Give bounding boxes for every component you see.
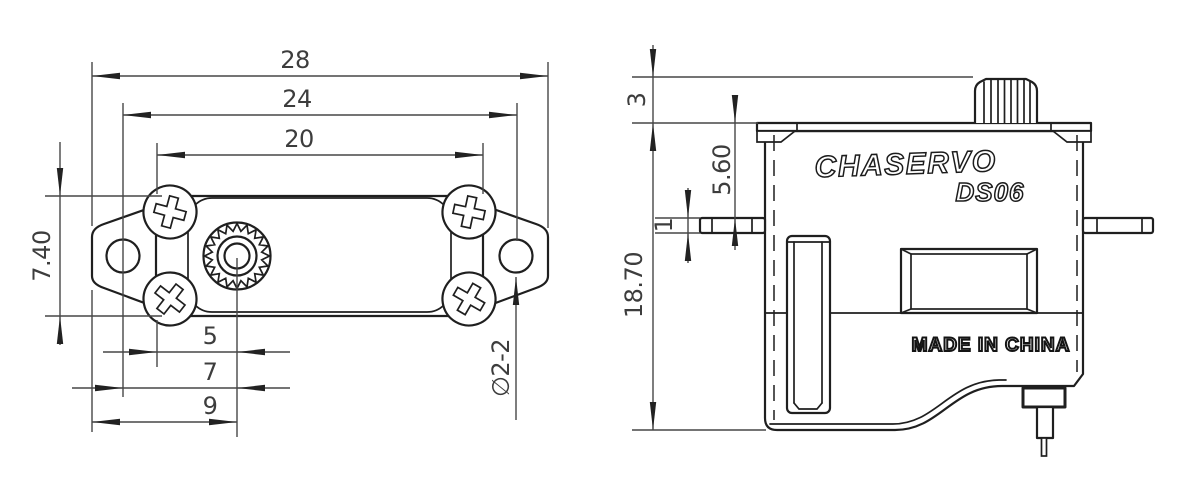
- dim-overall-width-label: 28: [280, 46, 310, 74]
- dim-body-width-label: 20: [284, 125, 314, 153]
- model-text: DS06: [955, 177, 1024, 207]
- hole-diameter-callout: ∅2-2: [487, 339, 515, 397]
- side-slot-feature: [787, 236, 830, 413]
- servo-side-view: CHASERVO DS06 MADE IN CHINA: [700, 79, 1153, 456]
- dim-flange-thickness-label: 1: [650, 218, 678, 233]
- servo-top-view: [92, 180, 548, 337]
- dim-shaft-to-ear-tip-label: 9: [203, 392, 218, 420]
- left-flange: [700, 218, 765, 233]
- technical-drawing: 28 24 20 7.40 5 7 9 ∅2-2: [0, 0, 1192, 499]
- right-flange: [1083, 218, 1153, 233]
- side-recess-window: [901, 249, 1037, 313]
- made-in-text: MADE IN CHINA: [912, 335, 1071, 356]
- side-spline-shaft: [975, 79, 1037, 123]
- dim-hole-spacing-label: 24: [282, 85, 312, 113]
- dim-overall-height-label: 18.70: [620, 252, 648, 318]
- dim-shaft-to-body-edge-label: 5: [203, 322, 218, 350]
- drawing-svg: 28 24 20 7.40 5 7 9 ∅2-2: [0, 0, 1192, 499]
- dim-body-depth-label: 7.40: [28, 230, 56, 281]
- dim-top-to-flange-label: 5.60: [708, 144, 736, 195]
- dim-shaft-height-label: 3: [623, 93, 651, 108]
- dim-shaft-to-hole-label: 7: [203, 358, 218, 386]
- connector-pin: [1023, 388, 1065, 456]
- side-top-lid: [757, 123, 1091, 131]
